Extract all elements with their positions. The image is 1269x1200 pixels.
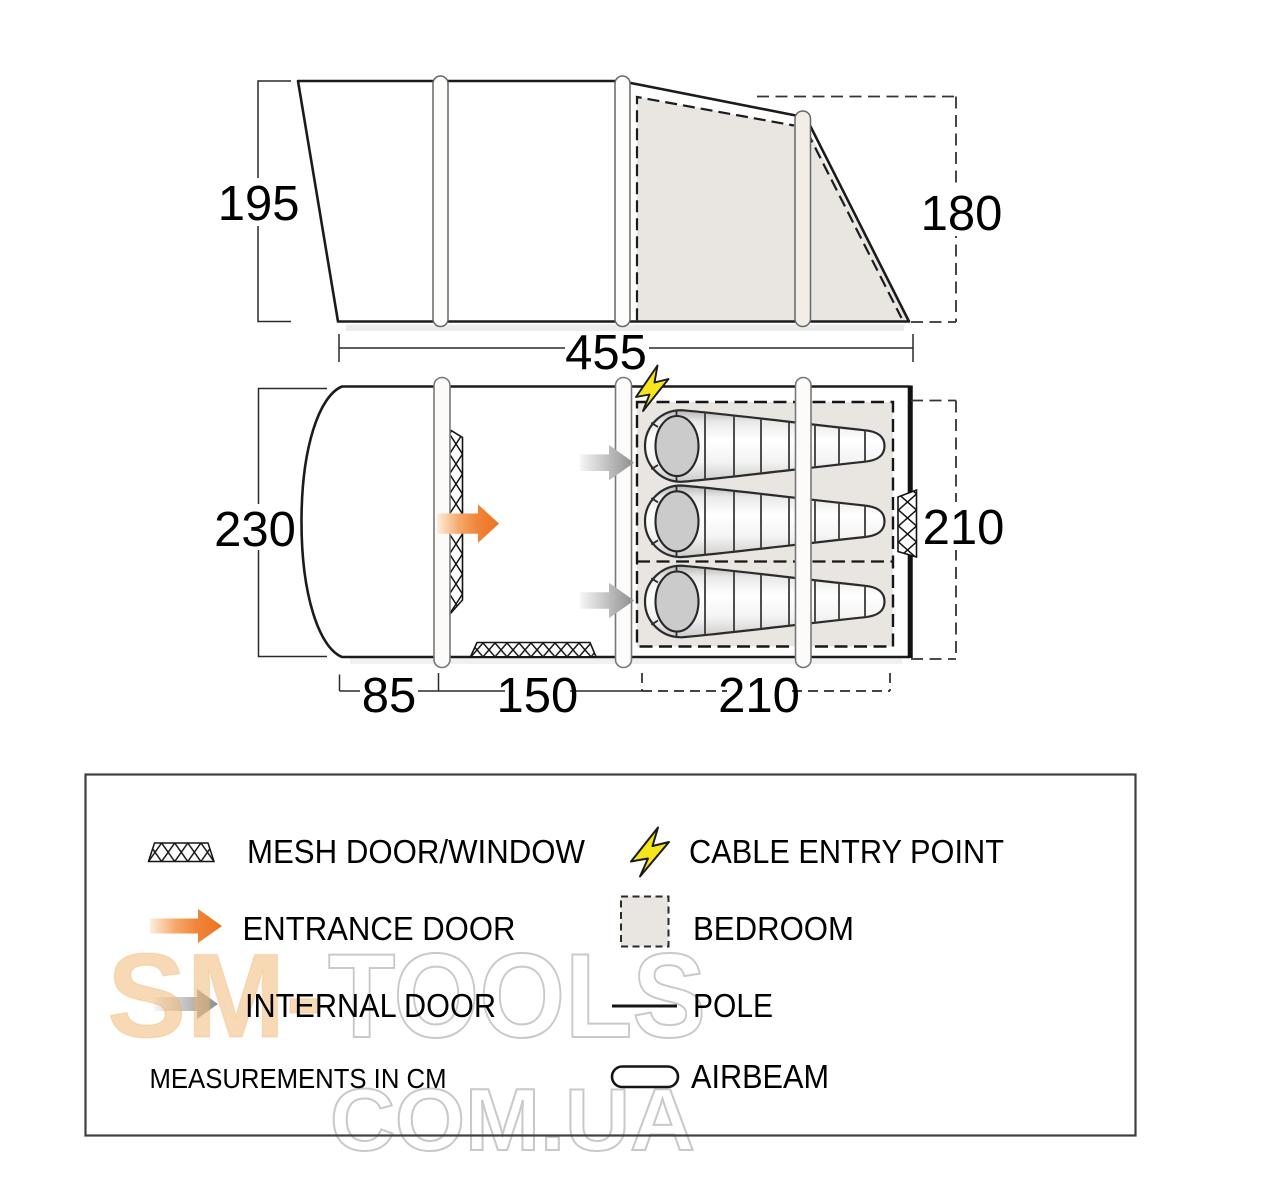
svg-text:MEASUREMENTS IN CM: MEASUREMENTS IN CM [150,1063,447,1094]
svg-text:230: 230 [214,503,296,557]
svg-text:455: 455 [565,326,647,380]
svg-text:POLE: POLE [693,987,773,1024]
svg-text:MESH DOOR/WINDOW: MESH DOOR/WINDOW [247,833,586,870]
svg-text:85: 85 [362,669,417,723]
svg-text:INTERNAL DOOR: INTERNAL DOOR [245,987,496,1024]
svg-text:195: 195 [218,177,300,231]
svg-text:BEDROOM: BEDROOM [693,910,854,947]
svg-text:AIRBEAM: AIRBEAM [691,1058,829,1095]
svg-text:210: 210 [923,501,1005,555]
svg-text:210: 210 [718,669,800,723]
svg-text:150: 150 [497,669,579,723]
svg-text:180: 180 [921,187,1003,241]
svg-text:CABLE ENTRY POINT: CABLE ENTRY POINT [689,833,1004,870]
